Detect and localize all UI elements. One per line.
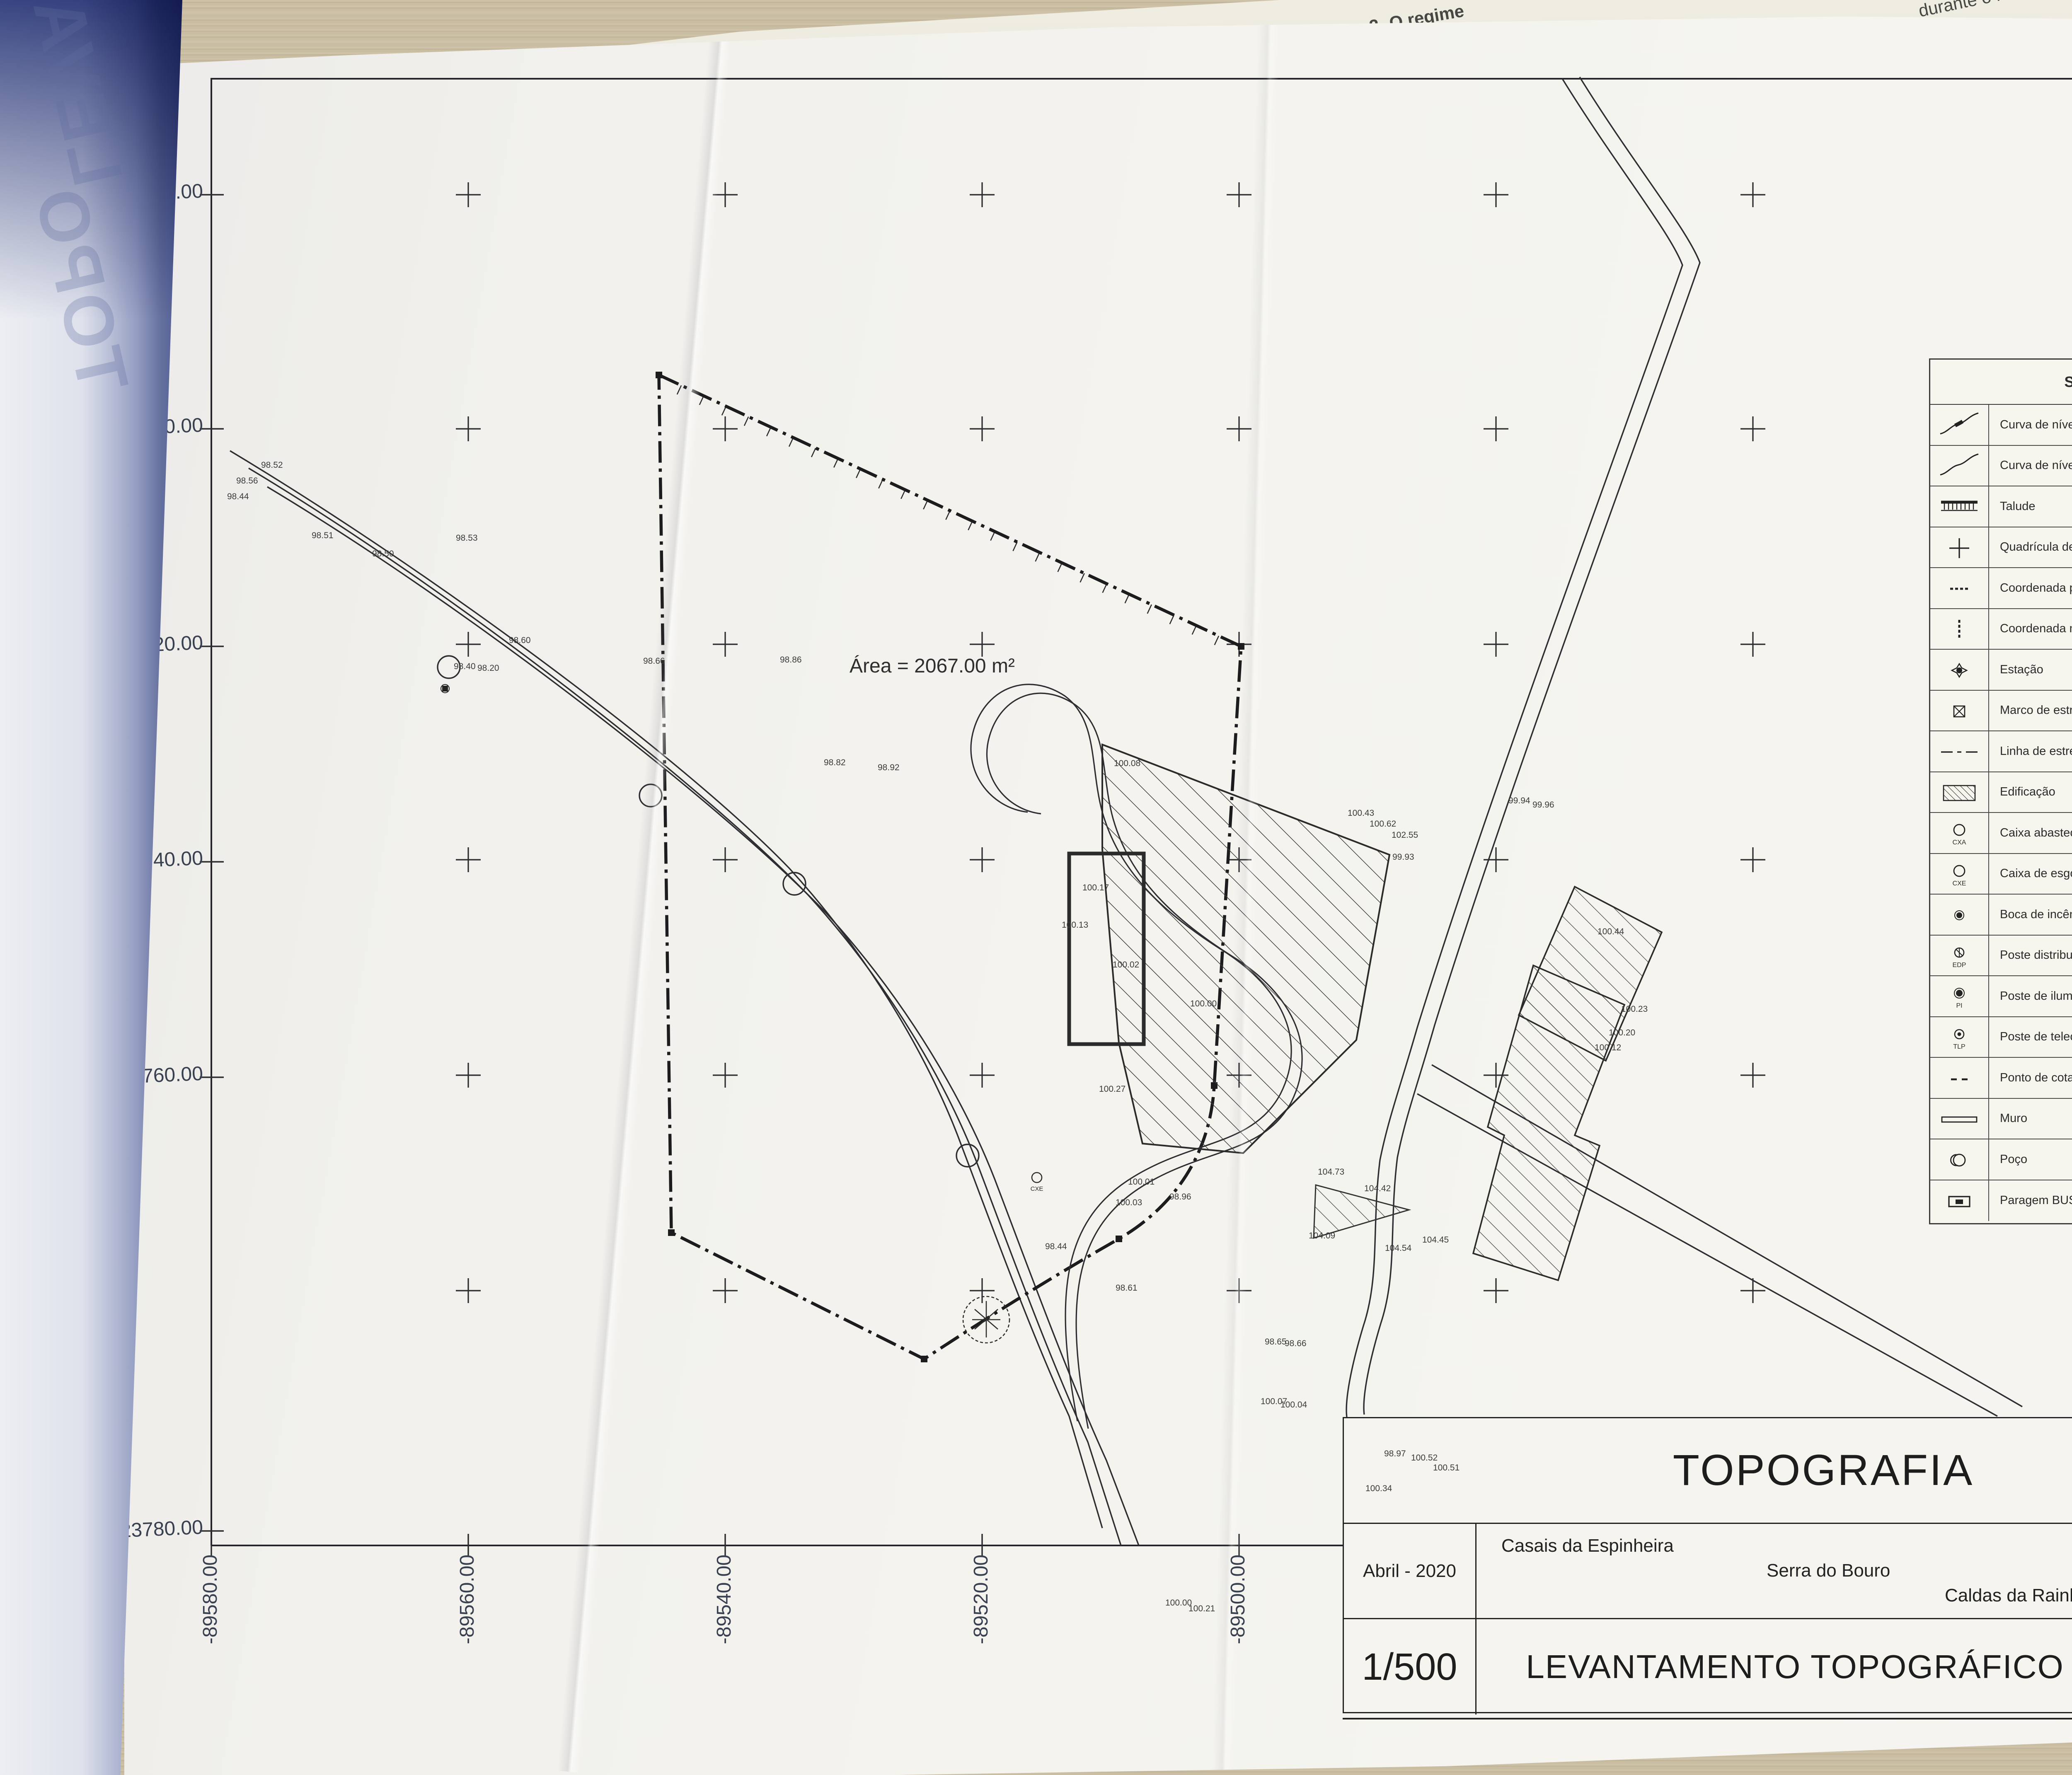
legend-row: EDPPoste distribuição EDP [1930, 936, 2072, 977]
grid-cross-icon [1930, 527, 1989, 568]
parcel-area-label: Área = 2067.00 m² [850, 655, 1015, 677]
fold-mirror-text: LEVA [17, 0, 139, 193]
spot-elevation-label: 100.08 [1114, 759, 1140, 769]
spot-elevation-label: 98.92 [878, 763, 900, 773]
spot-elevation-label: 98.50 [372, 549, 394, 559]
legend-item-label: Ponto de cota [1989, 1071, 2072, 1085]
fold-mirror-text: TOPO [18, 179, 144, 400]
legend-row: Curva de nível mestra com cota [1930, 405, 2072, 446]
well-icon [1930, 1139, 1989, 1180]
spot-elevation-label: 98.44 [227, 492, 249, 502]
legend-title: SIMBOLOGIA [1930, 360, 2072, 405]
drawing-scale: 1/500 [1344, 1619, 1475, 1715]
spot-elevation-label: 98.82 [824, 758, 846, 768]
coordinate-p-icon [1930, 568, 1989, 608]
property-marker-icon [1116, 1236, 1122, 1242]
bus-stop-icon [1930, 1180, 1989, 1221]
spot-elevation-label: 100.04 [1280, 1400, 1307, 1410]
legend-row: Muro [1930, 1099, 2072, 1140]
location-locality: Casais da Espinheira [1501, 1536, 1674, 1556]
coordinate-m-icon [1930, 609, 1989, 649]
location-municipality: Caldas da Rainha [1945, 1585, 2072, 1606]
tree-icon [963, 1296, 1009, 1343]
legend-icon-tag: PI [1956, 1003, 1962, 1009]
spot-elevation-label: 98.52 [261, 460, 283, 470]
legend-icon-tag: CXA [1953, 840, 1966, 846]
title-block: TOPOGRAFIA Abril - 2020 1/500 Casais da … [1343, 1417, 2072, 1713]
spot-elevation-label: 100.02 [1113, 960, 1139, 970]
legend-row: Ponto de cota [1930, 1058, 2072, 1099]
spot-elevation-label: 100.52 [1411, 1453, 1438, 1463]
spot-elevation-label: 98.51 [312, 531, 334, 541]
spot-elevation-label: 100.00 [1190, 999, 1217, 1009]
legend-item-label: Poço [1989, 1153, 2027, 1166]
legend-item-label: Coordenada p [1989, 581, 2072, 595]
spot-elevation-label: 100.34 [1365, 1484, 1392, 1494]
spot-elevation-label: 98.40 [454, 662, 476, 672]
legend-row: Paragem BUS [1930, 1180, 2072, 1221]
telecom-pole-icon: TLP [1930, 1017, 1989, 1057]
drawing-subtitle: LEVANTAMENTO TOPOGRÁFICO [1477, 1619, 2072, 1715]
spot-elevation-label: 98.61 [1116, 1283, 1138, 1293]
property-marker-icon [668, 1229, 675, 1236]
location-parish: Serra do Bouro [1767, 1560, 1890, 1581]
legend: SIMBOLOGIA Curva de nível mestra com cot… [1929, 358, 2072, 1224]
spot-elevation-label: 100.23 [1621, 1004, 1648, 1014]
legend-item-label: Edificação [1989, 785, 2055, 799]
legend-row: Edificação [1930, 772, 2072, 813]
spot-elevation-label: 100.44 [1598, 927, 1624, 937]
title-block-double-border [1343, 1718, 2072, 1719]
legend-item-label: Linha de estrema [1989, 745, 2072, 758]
legend-icon-tag: TLP [1953, 1044, 1965, 1050]
x-axis-label: -89520.00 [970, 1555, 992, 1644]
topographic-sheet: Área = 2067.00 m² NORTE SIMBOLOGIA Curva… [124, 17, 2072, 1775]
spot-elevation-label: 99.93 [1392, 852, 1414, 862]
fire-hydrant-icon [1930, 895, 1989, 935]
title-block-col-left: Abril - 2020 1/500 [1344, 1524, 1477, 1715]
spot-elevation-label: 100.00 [1165, 1598, 1192, 1608]
spot-elevation-label: 98.65 [1265, 1337, 1287, 1347]
legend-row: Talude [1930, 486, 2072, 527]
spot-elevation-label: 104.42 [1364, 1184, 1391, 1194]
spot-elevation-label: 104.54 [1385, 1243, 1411, 1253]
legend-item-label: Curva de nível secundária [1989, 459, 2072, 472]
drawing-date: Abril - 2020 [1344, 1524, 1475, 1619]
spot-elevation-label: 98.66 [643, 656, 665, 666]
x-axis-label: -89580.00 [199, 1555, 222, 1644]
spot-elevation-label: 98.66 [1285, 1339, 1307, 1349]
legend-item-label: Coordenada m [1989, 622, 2072, 636]
spot-elevation-label: 100.01 [1128, 1177, 1155, 1187]
legend-item-label: Paragem BUS [1989, 1194, 2072, 1207]
legend-item-label: Quadrícula de coordenação [1989, 540, 2072, 554]
spot-elevation-label: 100.62 [1370, 819, 1396, 829]
slope-icon [1930, 486, 1989, 527]
wall-icon [1930, 1099, 1989, 1139]
water-box-icon: CXA [1930, 813, 1989, 853]
x-axis-label: -89500.00 [1227, 1555, 1249, 1644]
spot-elevation-label: 98.96 [1169, 1192, 1191, 1202]
legend-item-label: Poste distribuição EDP [1989, 948, 2072, 962]
road-east [1346, 77, 2022, 1417]
legend-row: Linha de estrema [1930, 731, 2072, 772]
building-east [1473, 887, 1662, 1280]
spot-elevation-label: 98.60 [509, 636, 531, 646]
building-icon [1930, 772, 1989, 813]
legend-row: Marco de estrema de propriedade [1930, 691, 2072, 732]
legend-row: CXACaixa abastecimento de água [1930, 813, 2072, 854]
legend-icon-tag: EDP [1953, 962, 1966, 968]
property-marker-icon [1238, 643, 1244, 650]
spot-elevation-label: 100.13 [1062, 920, 1088, 930]
well-icon [639, 784, 662, 807]
spot-elevation-label: 104.45 [1422, 1235, 1449, 1245]
legend-icon-tag: CXE [1953, 881, 1966, 887]
spot-elevation-label: 98.97 [1384, 1449, 1406, 1459]
legend-row: PIPoste de iluminação [1930, 976, 2072, 1017]
spot-elevation-label: 100.20 [1609, 1028, 1635, 1038]
title-block-col-mid: Casais da Espinheira Serra do Bouro Cald… [1477, 1524, 2072, 1715]
legend-row: Poço [1930, 1139, 2072, 1180]
legend-row: Estação [1930, 650, 2072, 691]
legend-item-label: Poste de iluminação [1989, 989, 2072, 1003]
legend-item-label: Marco de estrema de propriedade [1989, 704, 2072, 717]
legend-item-label: Poste de telecomunicações [1989, 1030, 2072, 1044]
spot-elevation-label: 100.43 [1348, 808, 1374, 818]
spot-elevation-label: 98.86 [780, 655, 802, 665]
contour-minor-icon [1930, 446, 1989, 486]
legend-row: Quadrícula de coordenação [1930, 527, 2072, 568]
legend-item-label: Muro [1989, 1112, 2027, 1125]
station-icon [440, 684, 450, 696]
legend-row: Coordenada m [1930, 609, 2072, 650]
spot-elevation-label: 100.03 [1116, 1198, 1142, 1208]
spot-elevation-label: 100.17 [1082, 883, 1109, 893]
legend-item-label: Caixa abastecimento de água [1989, 826, 2072, 840]
legend-item-label: Estação [1989, 663, 2043, 677]
grid-layer [200, 182, 1765, 1556]
road-west [230, 451, 1139, 1545]
location-cell: Casais da Espinheira Serra do Bouro Cald… [1477, 1524, 2072, 1619]
legend-item-label: Talude [1989, 500, 2035, 513]
legend-item-label: Caixa de esgoto doméstico [1989, 867, 2072, 880]
spot-elevation-label: 100.21 [1188, 1604, 1215, 1614]
boundary-line-icon [1930, 731, 1989, 771]
legend-row: Coordenada p [1930, 568, 2072, 609]
sewer-box-icon: CXE [1930, 854, 1989, 894]
spot-elevation-label: 99.94 [1508, 796, 1530, 806]
legend-item-label: Curva de nível mestra com cota [1989, 418, 2072, 432]
edp-pole-icon: EDP [1930, 936, 1989, 976]
spot-elevation-label: 100.12 [1595, 1043, 1621, 1053]
property-marker-icon [1930, 691, 1989, 731]
spot-elevation-label: 100.51 [1433, 1463, 1460, 1473]
spot-elevation-label: 98.44 [1045, 1242, 1067, 1252]
legend-row: Boca de incêndio [1930, 895, 2072, 936]
spot-elevation-label: 102.55 [1392, 830, 1418, 840]
legend-row: Curva de nível secundária [1930, 446, 2072, 487]
spot-elevation-label: 104.09 [1309, 1231, 1335, 1241]
x-axis-label: -89540.00 [713, 1555, 736, 1644]
spot-elevation-label: 98.56 [236, 476, 258, 486]
spot-elevation-label: 104.73 [1318, 1167, 1344, 1177]
spot-elevation-label: 98.53 [456, 533, 478, 543]
sewer-box-icon: CXE [1029, 1172, 1045, 1196]
legend-row: TLPPoste de telecomunicações [1930, 1017, 2072, 1058]
spot-elevation-label: 99.96 [1532, 800, 1554, 810]
light-pole-icon: PI [1930, 976, 1989, 1016]
property-marker-icon [656, 372, 662, 378]
svg-text:CXE: CXE [1031, 1185, 1043, 1192]
property-marker-icon [921, 1356, 927, 1362]
spot-elevation-label: 98.20 [477, 663, 499, 673]
spot-elevation-label: 100.27 [1099, 1084, 1126, 1094]
legend-row: CXECaixa de esgoto doméstico [1930, 854, 2072, 895]
spot-height-icon [1930, 1058, 1989, 1098]
contract-text-fragment: social na [350, 16, 421, 47]
legend-item-label: Boca de incêndio [1989, 908, 2072, 921]
x-axis-label: -89560.00 [456, 1555, 479, 1644]
station-icon [1930, 650, 1989, 690]
contour-major-icon [1930, 405, 1989, 445]
